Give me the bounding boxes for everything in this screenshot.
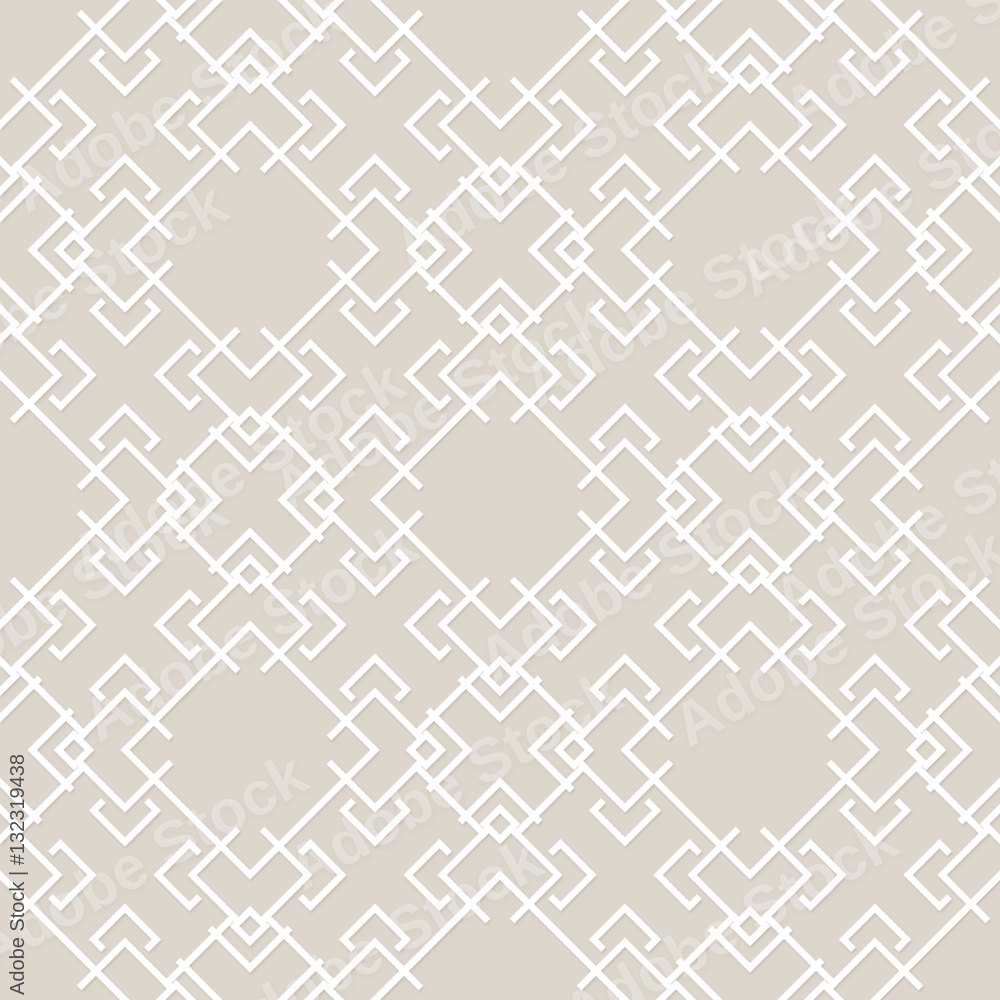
svg-text:Adobe Stock | #132319438: Adobe Stock | #132319438 (7, 754, 29, 995)
